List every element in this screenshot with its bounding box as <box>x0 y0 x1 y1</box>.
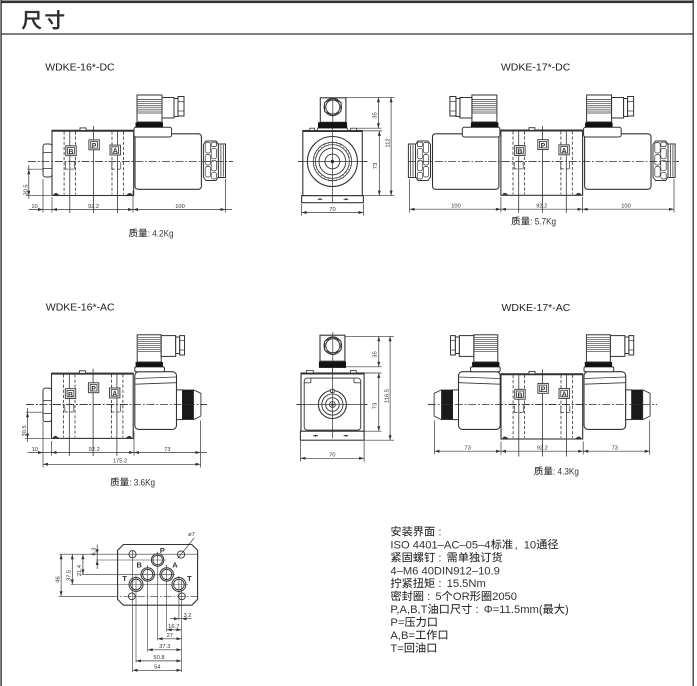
svg-text:WDKE-17*-AC: WDKE-17*-AC <box>502 302 571 314</box>
svg-text:73: 73 <box>373 163 379 169</box>
svg-text:P: P <box>160 546 165 555</box>
svg-text:A: A <box>172 561 178 570</box>
svg-text:10: 10 <box>31 204 37 210</box>
svg-text:30.5: 30.5 <box>23 184 29 195</box>
svg-text:ø7: ø7 <box>188 532 195 538</box>
svg-text:73: 73 <box>373 403 379 409</box>
svg-text:10: 10 <box>32 447 38 453</box>
svg-text:35: 35 <box>372 112 378 118</box>
svg-text::: : <box>438 552 441 564</box>
svg-text:A,B=: A,B= <box>390 630 415 642</box>
svg-text:P=: P= <box>390 617 404 629</box>
svg-text:92.2: 92.2 <box>89 447 100 453</box>
svg-text:15.5Nm: 15.5Nm <box>447 578 486 590</box>
svg-text:70: 70 <box>329 453 335 459</box>
svg-text:37.3: 37.3 <box>159 644 170 650</box>
svg-text::: : <box>427 591 430 603</box>
svg-text::: : <box>438 578 441 590</box>
svg-text:92.2: 92.2 <box>536 204 547 210</box>
svg-text:54: 54 <box>154 665 161 671</box>
svg-text:112: 112 <box>385 138 391 147</box>
svg-text:175.2: 175.2 <box>113 459 127 465</box>
svg-text:: 3.6Kg: : 3.6Kg <box>129 478 155 489</box>
svg-text:92.2: 92.2 <box>88 204 99 210</box>
svg-text:10: 10 <box>524 539 536 551</box>
svg-text::: : <box>438 527 441 539</box>
svg-text:100: 100 <box>451 204 461 210</box>
svg-text:OR: OR <box>453 591 470 603</box>
svg-text:5: 5 <box>435 591 441 603</box>
svg-text:3.2: 3.2 <box>183 613 191 619</box>
svg-text:100: 100 <box>621 204 631 210</box>
svg-text:ISO 4401–AC–05–4: ISO 4401–AC–05–4 <box>390 539 490 551</box>
svg-text:: 4.2Kg: : 4.2Kg <box>148 229 174 240</box>
svg-text:35: 35 <box>373 351 379 357</box>
svg-text:B: B <box>137 561 143 570</box>
svg-text:Φ=11.5mm(: Φ=11.5mm( <box>484 604 543 616</box>
svg-text:: 5.7Kg: : 5.7Kg <box>530 217 556 228</box>
svg-text::: : <box>476 604 479 616</box>
svg-text:100: 100 <box>175 204 185 210</box>
svg-text:WDKE-16*-AC: WDKE-16*-AC <box>46 302 115 314</box>
svg-text:P,A,B,T: P,A,B,T <box>390 604 427 616</box>
svg-text:30.5: 30.5 <box>22 425 28 436</box>
svg-text:6.3: 6.3 <box>91 547 97 555</box>
svg-text:WDKE-16*-DC: WDKE-16*-DC <box>45 62 115 74</box>
svg-text:): ) <box>565 604 569 616</box>
svg-text:T: T <box>187 574 192 583</box>
svg-text:T=: T= <box>390 643 403 655</box>
svg-text:16.7: 16.7 <box>168 624 179 630</box>
svg-text:,: , <box>515 539 518 551</box>
svg-text:27: 27 <box>167 633 173 639</box>
svg-text:37.5: 37.5 <box>67 570 73 581</box>
svg-text:92.2: 92.2 <box>537 446 548 452</box>
svg-text:116.5: 116.5 <box>384 389 390 403</box>
svg-text:: 4.3Kg: : 4.3Kg <box>553 467 579 478</box>
svg-text:50.8: 50.8 <box>153 655 164 661</box>
svg-text:WDKE-17*-DC: WDKE-17*-DC <box>501 62 571 74</box>
svg-text:46: 46 <box>55 576 61 582</box>
svg-text:70: 70 <box>329 207 335 213</box>
svg-text:21.4: 21.4 <box>77 564 83 576</box>
svg-text:73: 73 <box>612 446 618 452</box>
svg-text:73: 73 <box>164 447 170 453</box>
svg-text:T: T <box>122 574 127 583</box>
svg-text:4–M6 40DIN912–10.9: 4–M6 40DIN912–10.9 <box>390 565 499 577</box>
svg-text:2050: 2050 <box>492 591 517 603</box>
svg-text:73: 73 <box>465 446 471 452</box>
